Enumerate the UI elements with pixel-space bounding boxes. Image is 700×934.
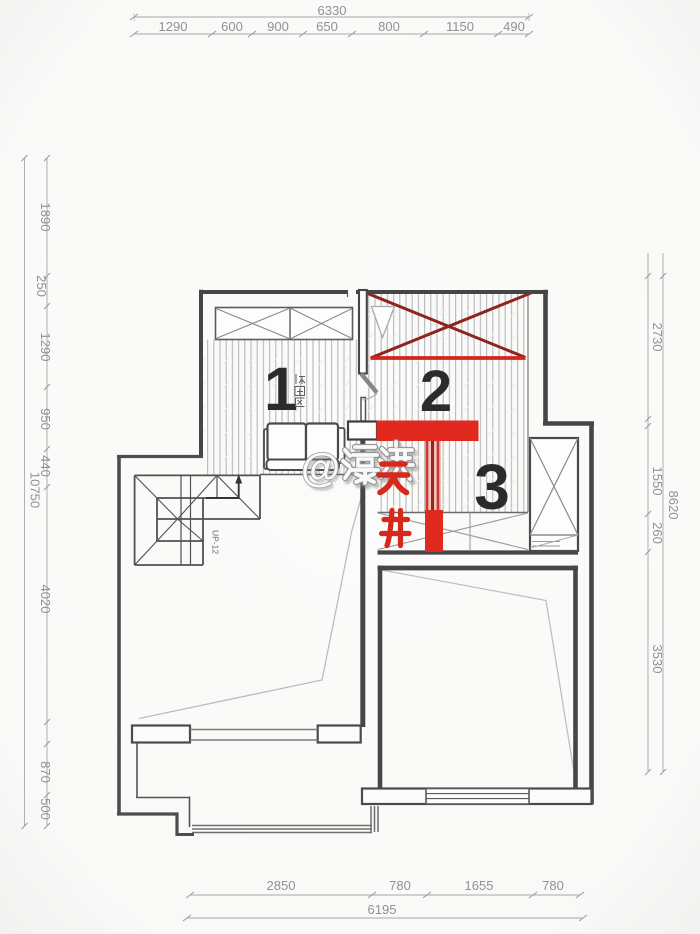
svg-text:780: 780 xyxy=(389,878,411,893)
svg-text:1655: 1655 xyxy=(465,878,494,893)
svg-text:2: 2 xyxy=(420,359,452,424)
svg-text:780: 780 xyxy=(542,878,564,893)
svg-text:1: 1 xyxy=(264,355,298,423)
svg-text:650: 650 xyxy=(316,19,338,34)
svg-text:1890: 1890 xyxy=(38,203,53,232)
svg-text:1290: 1290 xyxy=(38,333,53,362)
svg-text:1290: 1290 xyxy=(159,19,188,34)
svg-text:600: 600 xyxy=(221,19,243,34)
svg-text:900: 900 xyxy=(267,19,289,34)
svg-text:6195: 6195 xyxy=(368,902,397,917)
svg-text:440: 440 xyxy=(38,455,53,477)
svg-text:8620: 8620 xyxy=(666,491,681,520)
svg-text:4020: 4020 xyxy=(38,585,53,614)
svg-text:250: 250 xyxy=(34,275,49,297)
svg-text:6330: 6330 xyxy=(318,3,347,18)
svg-text:870: 870 xyxy=(38,761,53,783)
svg-text:UP-12: UP-12 xyxy=(211,530,221,554)
svg-text:490: 490 xyxy=(503,19,525,34)
svg-text:950: 950 xyxy=(38,408,53,430)
svg-text:@: @ xyxy=(301,446,340,490)
svg-text:500: 500 xyxy=(38,798,53,820)
svg-text:2850: 2850 xyxy=(267,878,296,893)
svg-text:10750: 10750 xyxy=(28,472,43,508)
svg-text:3: 3 xyxy=(474,451,510,523)
svg-text:1150: 1150 xyxy=(446,19,474,34)
svg-text:800: 800 xyxy=(378,19,400,34)
